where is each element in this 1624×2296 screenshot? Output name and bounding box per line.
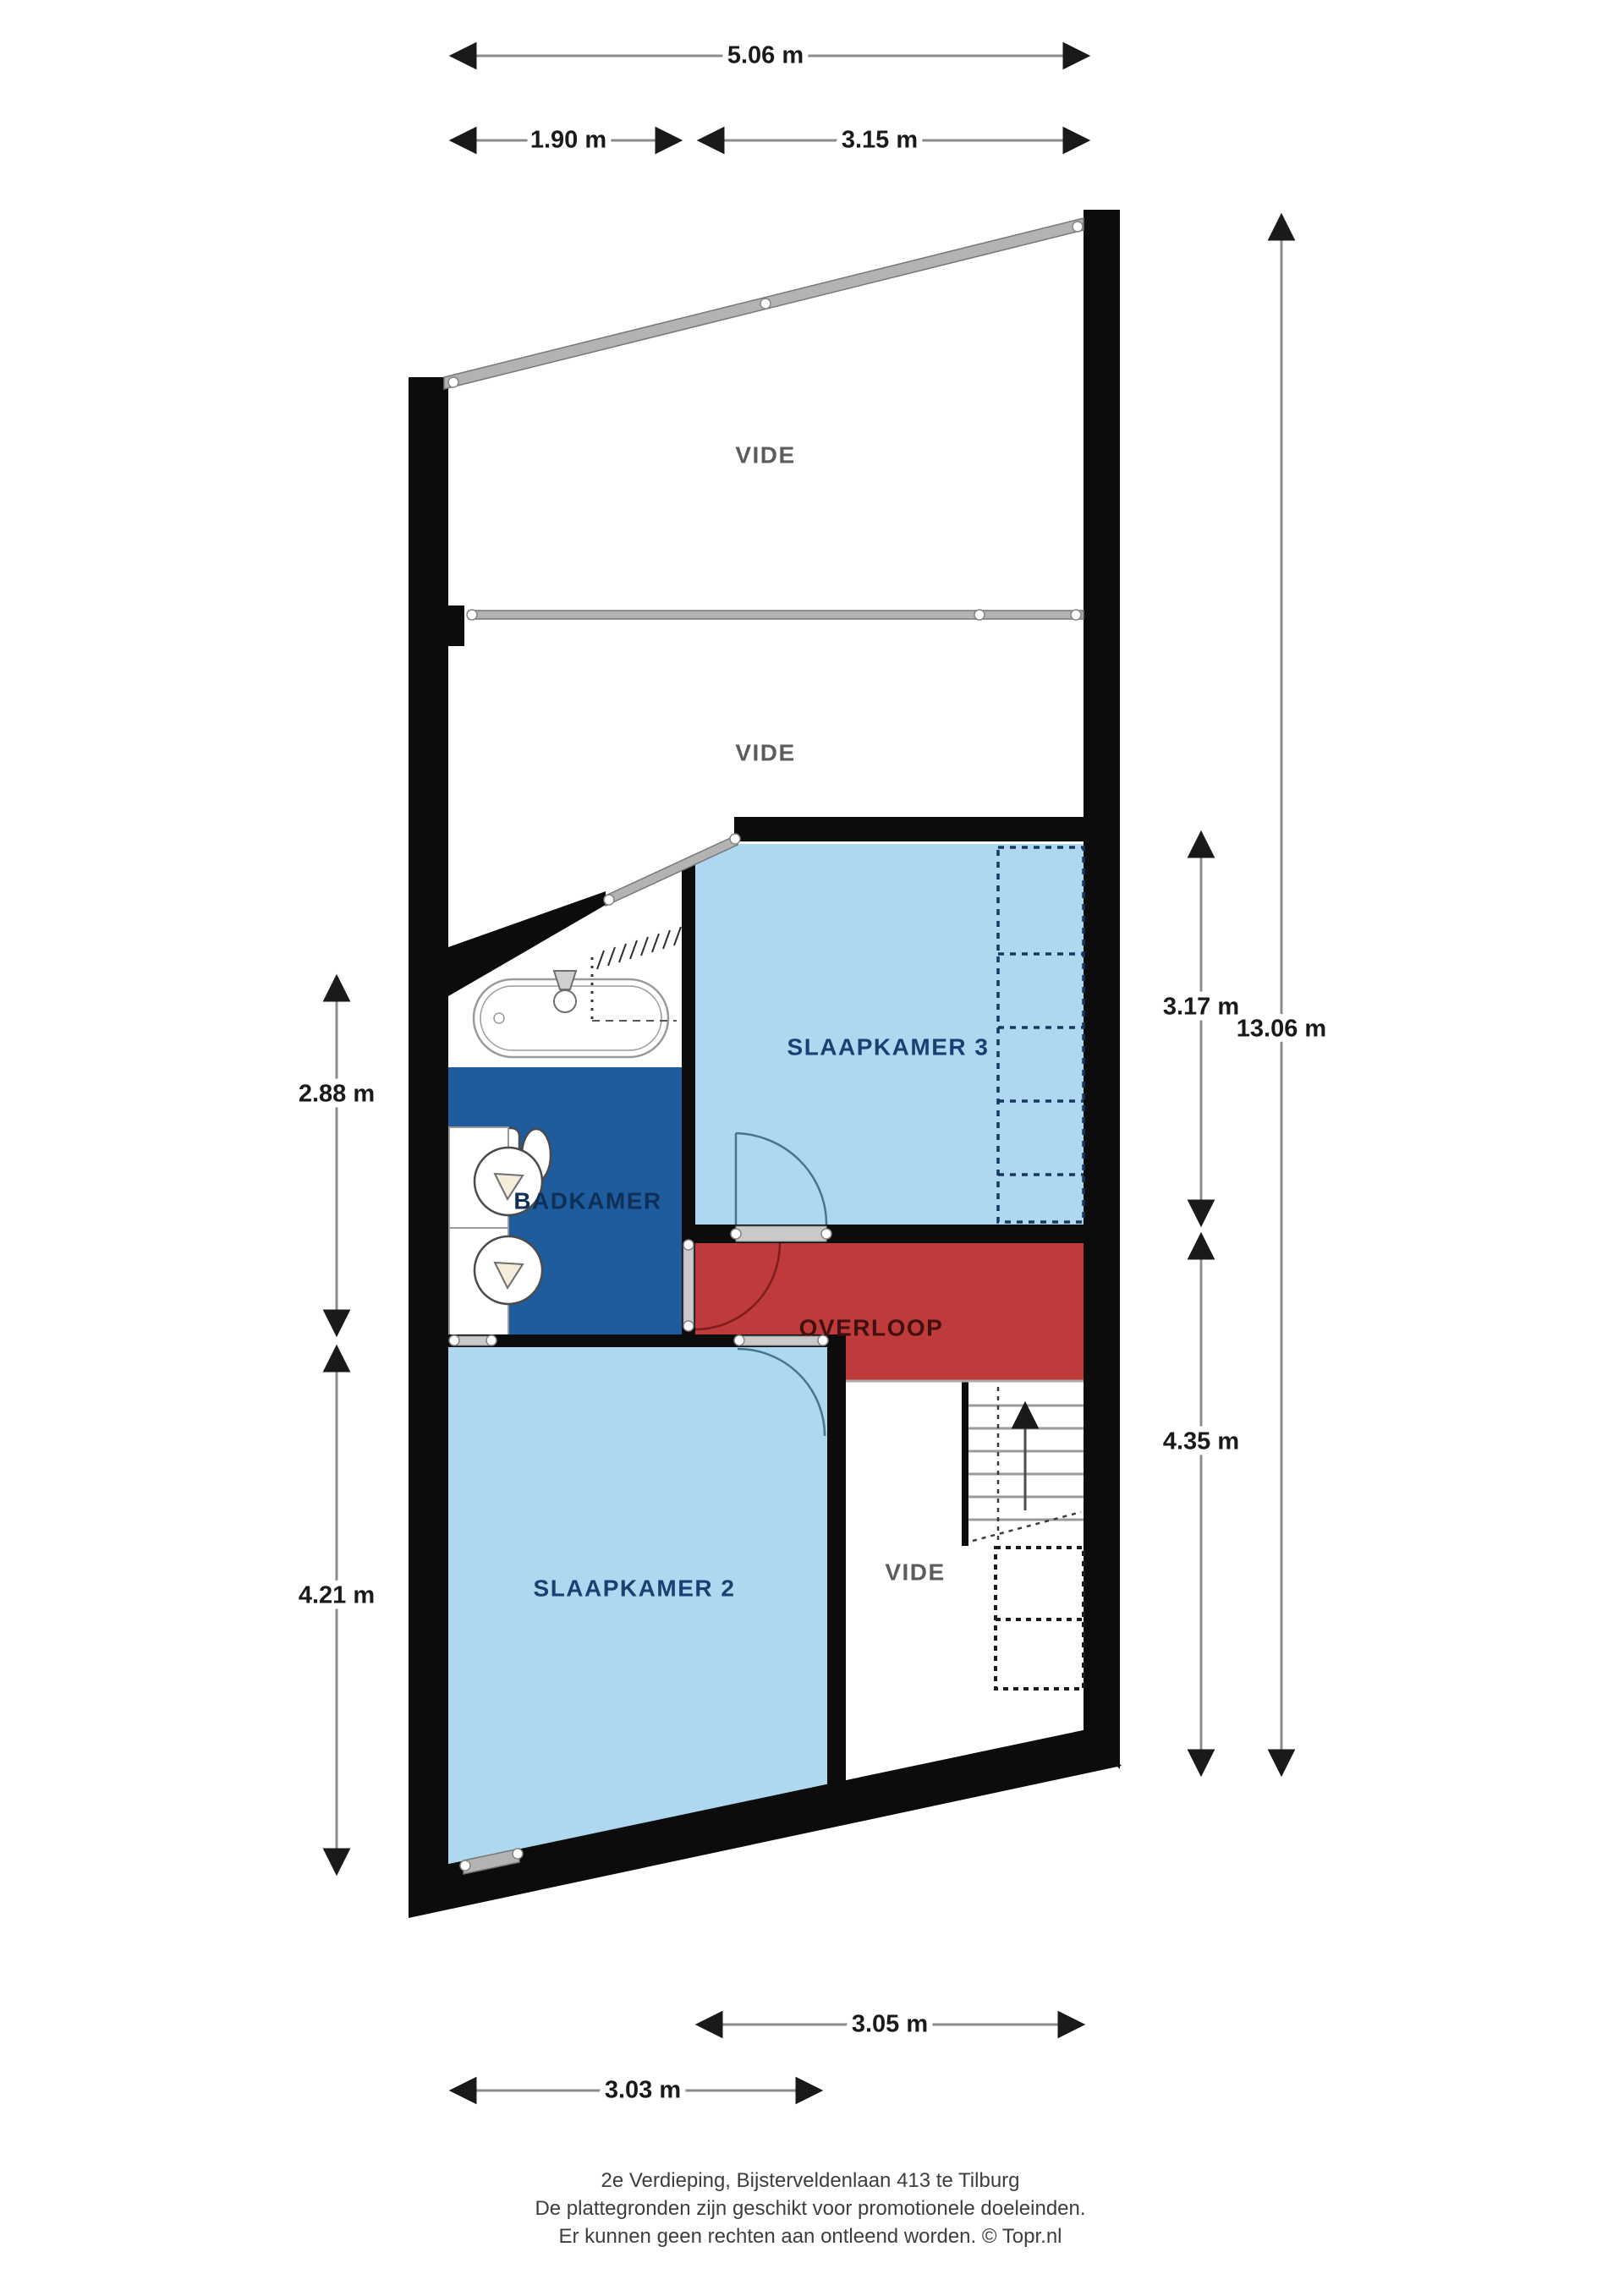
floor-plan-page: VIDE VIDE SLAAPKAMER 3 BADKAMER OVERLOOP… xyxy=(0,0,1624,2296)
floor-plan-drawing: VIDE VIDE SLAAPKAMER 3 BADKAMER OVERLOOP… xyxy=(0,0,1624,2296)
room-label-slaapkamer2: SLAAPKAMER 2 xyxy=(534,1575,736,1601)
dimension-bottom-inner: 3.05 m xyxy=(698,2011,1083,2038)
room-label-badkamer: BADKAMER xyxy=(513,1187,661,1214)
room-label-vide-mid: VIDE xyxy=(735,739,795,765)
room-label-vide-top: VIDE xyxy=(735,441,795,468)
footer-line-1: 2e Verdieping, Bijsterveldenlaan 413 te … xyxy=(601,2169,1020,2192)
dimension-right-total: 13.06 m xyxy=(1237,216,1326,1774)
dimension-right-lower: 4.35 m xyxy=(1163,1235,1239,1774)
room-label-overloop: OVERLOOP xyxy=(799,1314,944,1340)
dimension-left-upper: 2.88 m xyxy=(299,977,375,1334)
washbasin-2 xyxy=(475,1236,542,1304)
room-label-slaapkamer3: SLAAPKAMER 3 xyxy=(787,1033,990,1060)
door-badkamer-slaapkamer2 xyxy=(449,1335,497,1345)
footer-line-2: De plattegronden zijn geschikt voor prom… xyxy=(535,2197,1085,2220)
bathtub xyxy=(474,979,668,1057)
svg-text:13.06 m: 13.06 m xyxy=(1237,1016,1326,1043)
dimension-top-left: 1.90 m xyxy=(452,127,680,154)
svg-text:3.05 m: 3.05 m xyxy=(852,2011,928,2038)
svg-text:1.90 m: 1.90 m xyxy=(530,127,606,154)
svg-text:4.21 m: 4.21 m xyxy=(299,1582,375,1609)
svg-text:3.17 m: 3.17 m xyxy=(1163,994,1239,1021)
svg-text:3.15 m: 3.15 m xyxy=(842,127,918,154)
dimension-bottom-outer: 3.03 m xyxy=(452,2077,820,2104)
footer-line-3: Er kunnen geen rechten aan ontleend word… xyxy=(559,2225,1062,2248)
footer-credits: 2e Verdieping, Bijsterveldenlaan 413 te … xyxy=(535,2169,1085,2248)
dimension-top-total: 5.06 m xyxy=(452,42,1088,69)
room-label-vide-bottom: VIDE xyxy=(885,1559,945,1585)
room-slaapkamer2-floor xyxy=(448,1347,827,1864)
svg-text:5.06 m: 5.06 m xyxy=(727,42,804,69)
dimension-top-right: 3.15 m xyxy=(700,127,1088,154)
dimension-left-lower: 4.21 m xyxy=(299,1347,375,1873)
svg-text:4.35 m: 4.35 m xyxy=(1163,1428,1239,1455)
dimension-right-upper: 3.17 m xyxy=(1163,833,1239,1225)
svg-text:2.88 m: 2.88 m xyxy=(299,1081,375,1108)
svg-text:3.03 m: 3.03 m xyxy=(605,2077,681,2104)
vide-divider-rail xyxy=(467,610,1084,620)
